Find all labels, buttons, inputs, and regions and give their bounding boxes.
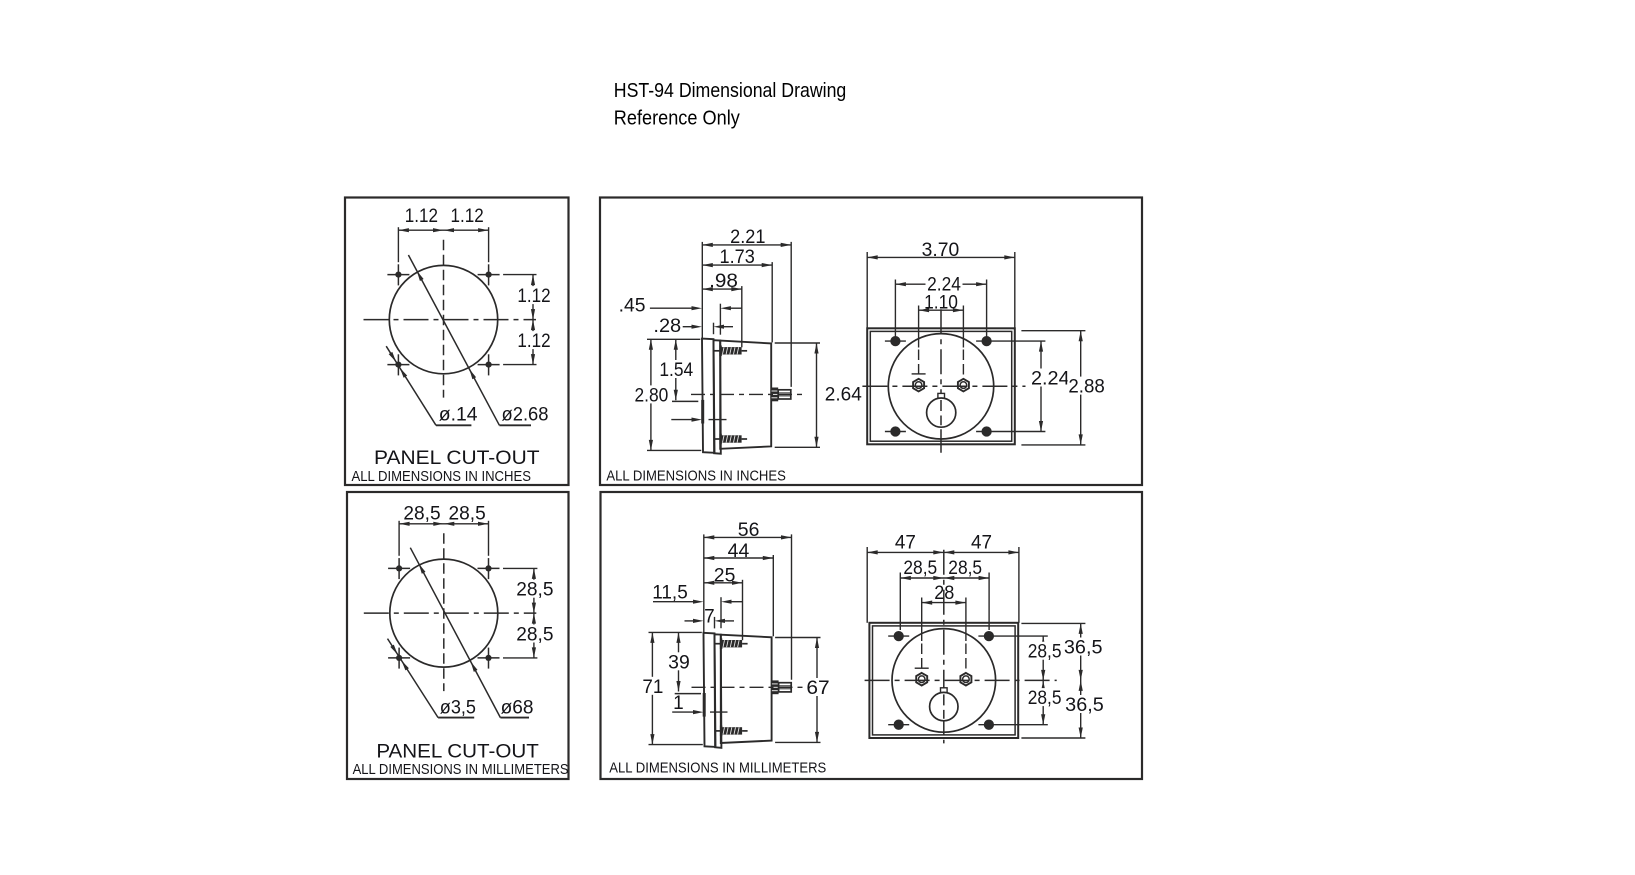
- svg-text:PANEL CUT-OUT: PANEL CUT-OUT: [376, 740, 539, 762]
- svg-text:1: 1: [673, 693, 684, 714]
- svg-text:28,5: 28,5: [403, 504, 440, 525]
- svg-text:28,5: 28,5: [449, 504, 486, 525]
- svg-text:25: 25: [714, 566, 736, 587]
- svg-text:ø68: ø68: [501, 698, 534, 719]
- svg-text:1.73: 1.73: [720, 247, 755, 268]
- svg-text:28,5: 28,5: [1028, 688, 1062, 709]
- svg-text:2.64: 2.64: [825, 384, 862, 405]
- svg-text:.45: .45: [619, 295, 646, 316]
- svg-text:2.24: 2.24: [1031, 369, 1070, 390]
- svg-text:ALL DIMENSIONS IN MILLIMETERS: ALL DIMENSIONS IN MILLIMETERS: [609, 761, 826, 777]
- svg-text:44: 44: [728, 541, 750, 562]
- svg-text:36,5: 36,5: [1064, 638, 1103, 659]
- svg-text:1.12: 1.12: [405, 206, 438, 227]
- svg-text:71: 71: [642, 677, 663, 698]
- svg-text:56: 56: [738, 520, 760, 541]
- svg-text:ø2.68: ø2.68: [502, 404, 549, 425]
- svg-text:28,5: 28,5: [948, 558, 982, 579]
- svg-text:3.70: 3.70: [922, 240, 960, 261]
- svg-text:1.54: 1.54: [659, 360, 693, 381]
- svg-text:1.12: 1.12: [517, 286, 550, 307]
- svg-text:67: 67: [806, 678, 829, 699]
- svg-text:.28: .28: [653, 316, 681, 337]
- svg-text:39: 39: [668, 652, 690, 673]
- svg-text:ø3,5: ø3,5: [440, 698, 476, 719]
- svg-text:Reference Only: Reference Only: [614, 106, 741, 129]
- svg-text:47: 47: [971, 532, 992, 553]
- svg-text:7: 7: [704, 607, 715, 628]
- svg-text:28,5: 28,5: [516, 625, 553, 646]
- svg-text:28,5: 28,5: [903, 558, 937, 579]
- svg-text:PANEL CUT-OUT: PANEL CUT-OUT: [374, 447, 540, 469]
- svg-text:47: 47: [895, 532, 916, 553]
- svg-text:2.80: 2.80: [635, 385, 669, 406]
- svg-text:ALL DIMENSIONS IN INCHES: ALL DIMENSIONS IN INCHES: [352, 469, 532, 485]
- svg-text:2.88: 2.88: [1068, 377, 1104, 398]
- svg-text:28,5: 28,5: [516, 580, 553, 601]
- svg-text:ALL DIMENSIONS IN MILLIMETERS: ALL DIMENSIONS IN MILLIMETERS: [353, 762, 569, 778]
- svg-text:ø.14: ø.14: [439, 404, 478, 425]
- svg-text:1.12: 1.12: [517, 331, 550, 352]
- svg-text:11,5: 11,5: [652, 583, 688, 604]
- svg-text:1.10: 1.10: [924, 293, 958, 314]
- svg-text:36,5: 36,5: [1065, 695, 1104, 716]
- svg-text:ALL DIMENSIONS IN INCHES: ALL DIMENSIONS IN INCHES: [606, 469, 786, 485]
- svg-text:1.12: 1.12: [451, 206, 484, 227]
- svg-text:.98: .98: [709, 271, 738, 292]
- svg-text:2.21: 2.21: [730, 227, 765, 248]
- svg-text:28,5: 28,5: [1028, 642, 1062, 663]
- svg-text:HST-94 Dimensional Drawing: HST-94 Dimensional Drawing: [614, 79, 847, 102]
- svg-text:28: 28: [934, 583, 954, 604]
